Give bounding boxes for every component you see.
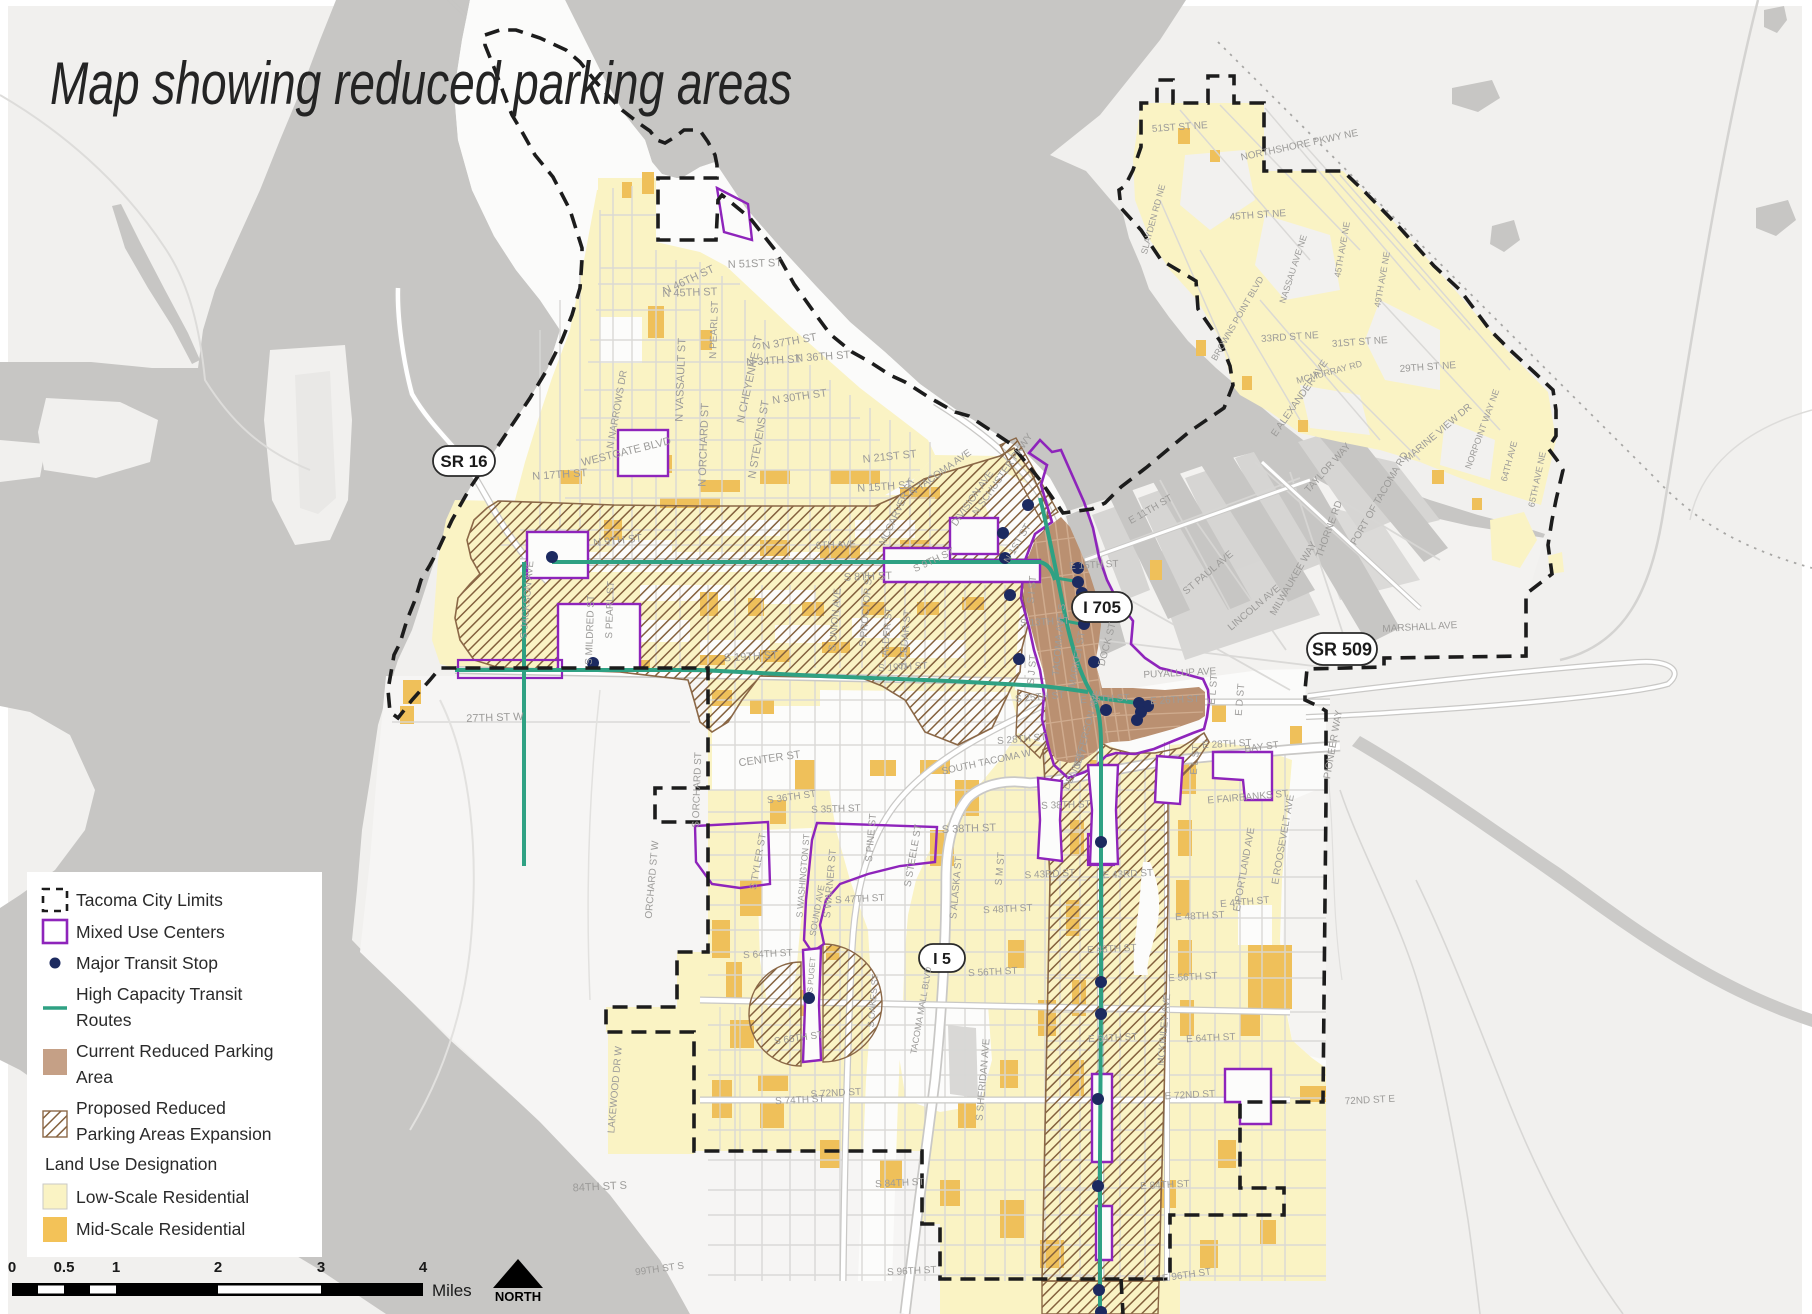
svg-text:S 38TH ST: S 38TH ST bbox=[1041, 799, 1091, 812]
svg-text:6TH AVE: 6TH AVE bbox=[816, 539, 857, 551]
svg-text:2: 2 bbox=[214, 1259, 222, 1276]
svg-text:Map showing reduced parking ar: Map showing reduced parking areas bbox=[50, 50, 792, 117]
svg-text:I 705: I 705 bbox=[1083, 598, 1121, 617]
svg-text:SR 509: SR 509 bbox=[1312, 639, 1372, 659]
svg-text:4: 4 bbox=[419, 1259, 428, 1276]
svg-text:S 35TH ST: S 35TH ST bbox=[811, 803, 861, 816]
svg-text:0.5: 0.5 bbox=[54, 1259, 75, 1276]
svg-text:Proposed Reduced: Proposed Reduced bbox=[76, 1098, 226, 1118]
svg-text:Routes: Routes bbox=[76, 1010, 132, 1030]
svg-text:27TH ST W: 27TH ST W bbox=[466, 711, 524, 725]
svg-text:S PEARL ST: S PEARL ST bbox=[604, 581, 617, 639]
svg-text:NORTH: NORTH bbox=[495, 1289, 541, 1304]
svg-text:N PEARL ST: N PEARL ST bbox=[708, 301, 721, 359]
svg-text:S 38TH ST: S 38TH ST bbox=[941, 822, 996, 836]
svg-text:High Capacity Transit: High Capacity Transit bbox=[76, 984, 242, 1004]
svg-text:Parking Areas Expansion: Parking Areas Expansion bbox=[76, 1124, 272, 1144]
svg-text:Miles: Miles bbox=[432, 1281, 472, 1300]
svg-text:Mixed Use Centers: Mixed Use Centers bbox=[76, 922, 225, 942]
svg-text:1: 1 bbox=[112, 1259, 120, 1276]
svg-text:Current Reduced Parking: Current Reduced Parking bbox=[76, 1041, 273, 1061]
svg-text:Mid-Scale Residential: Mid-Scale Residential bbox=[76, 1219, 245, 1239]
svg-text:Area: Area bbox=[76, 1067, 113, 1087]
svg-text:N 45TH ST: N 45TH ST bbox=[662, 286, 718, 300]
svg-text:I 5: I 5 bbox=[933, 951, 951, 968]
svg-text:Low-Scale Residential: Low-Scale Residential bbox=[76, 1187, 249, 1207]
svg-text:Major Transit Stop: Major Transit Stop bbox=[76, 953, 218, 973]
svg-text:Tacoma City Limits: Tacoma City Limits bbox=[76, 890, 223, 910]
svg-text:0: 0 bbox=[8, 1259, 16, 1276]
svg-text:3: 3 bbox=[317, 1259, 325, 1276]
svg-text:SR 16: SR 16 bbox=[440, 452, 487, 471]
svg-text:N 51ST ST: N 51ST ST bbox=[728, 257, 783, 271]
svg-text:Land Use Designation: Land Use Designation bbox=[45, 1154, 217, 1174]
